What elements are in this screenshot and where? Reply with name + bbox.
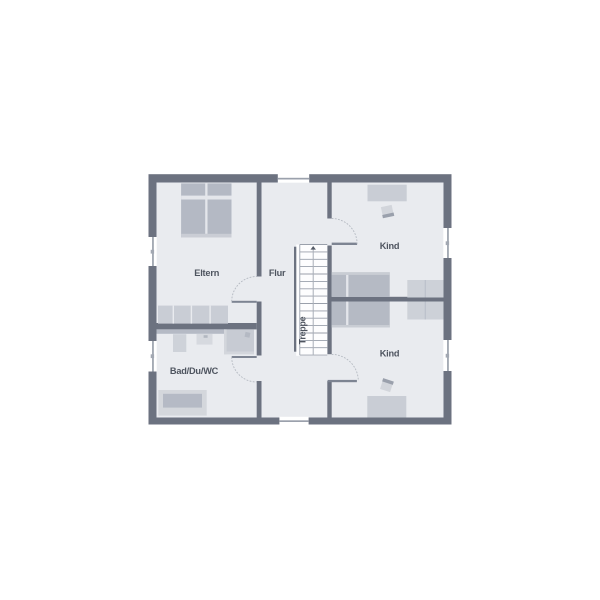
svg-text:Eltern: Eltern bbox=[194, 268, 219, 278]
svg-text:Kind: Kind bbox=[380, 241, 400, 251]
svg-text:Kind: Kind bbox=[380, 349, 400, 359]
svg-text:Bad/Du/WC: Bad/Du/WC bbox=[170, 366, 219, 376]
svg-text:Flur: Flur bbox=[269, 268, 286, 278]
svg-text:Treppe: Treppe bbox=[298, 316, 308, 344]
